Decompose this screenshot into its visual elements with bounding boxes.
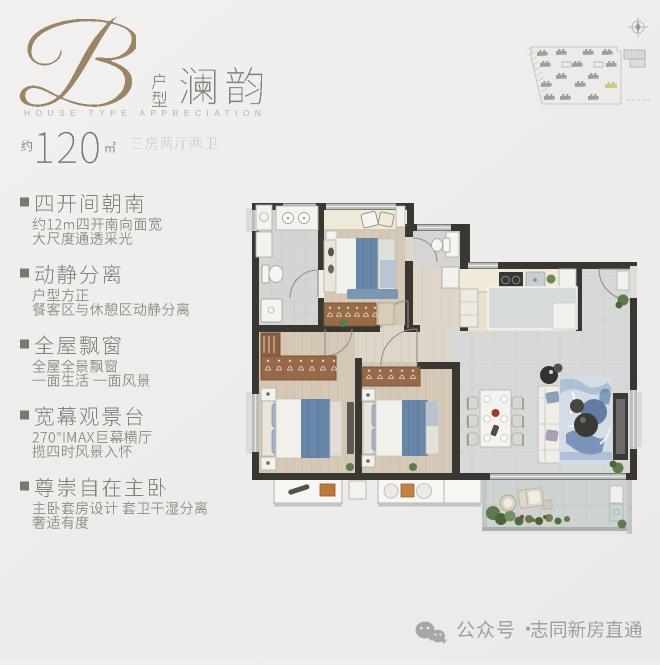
- svg-text:HOUSE TYPE APPRECIATION: HOUSE TYPE APPRECIATION: [24, 108, 266, 118]
